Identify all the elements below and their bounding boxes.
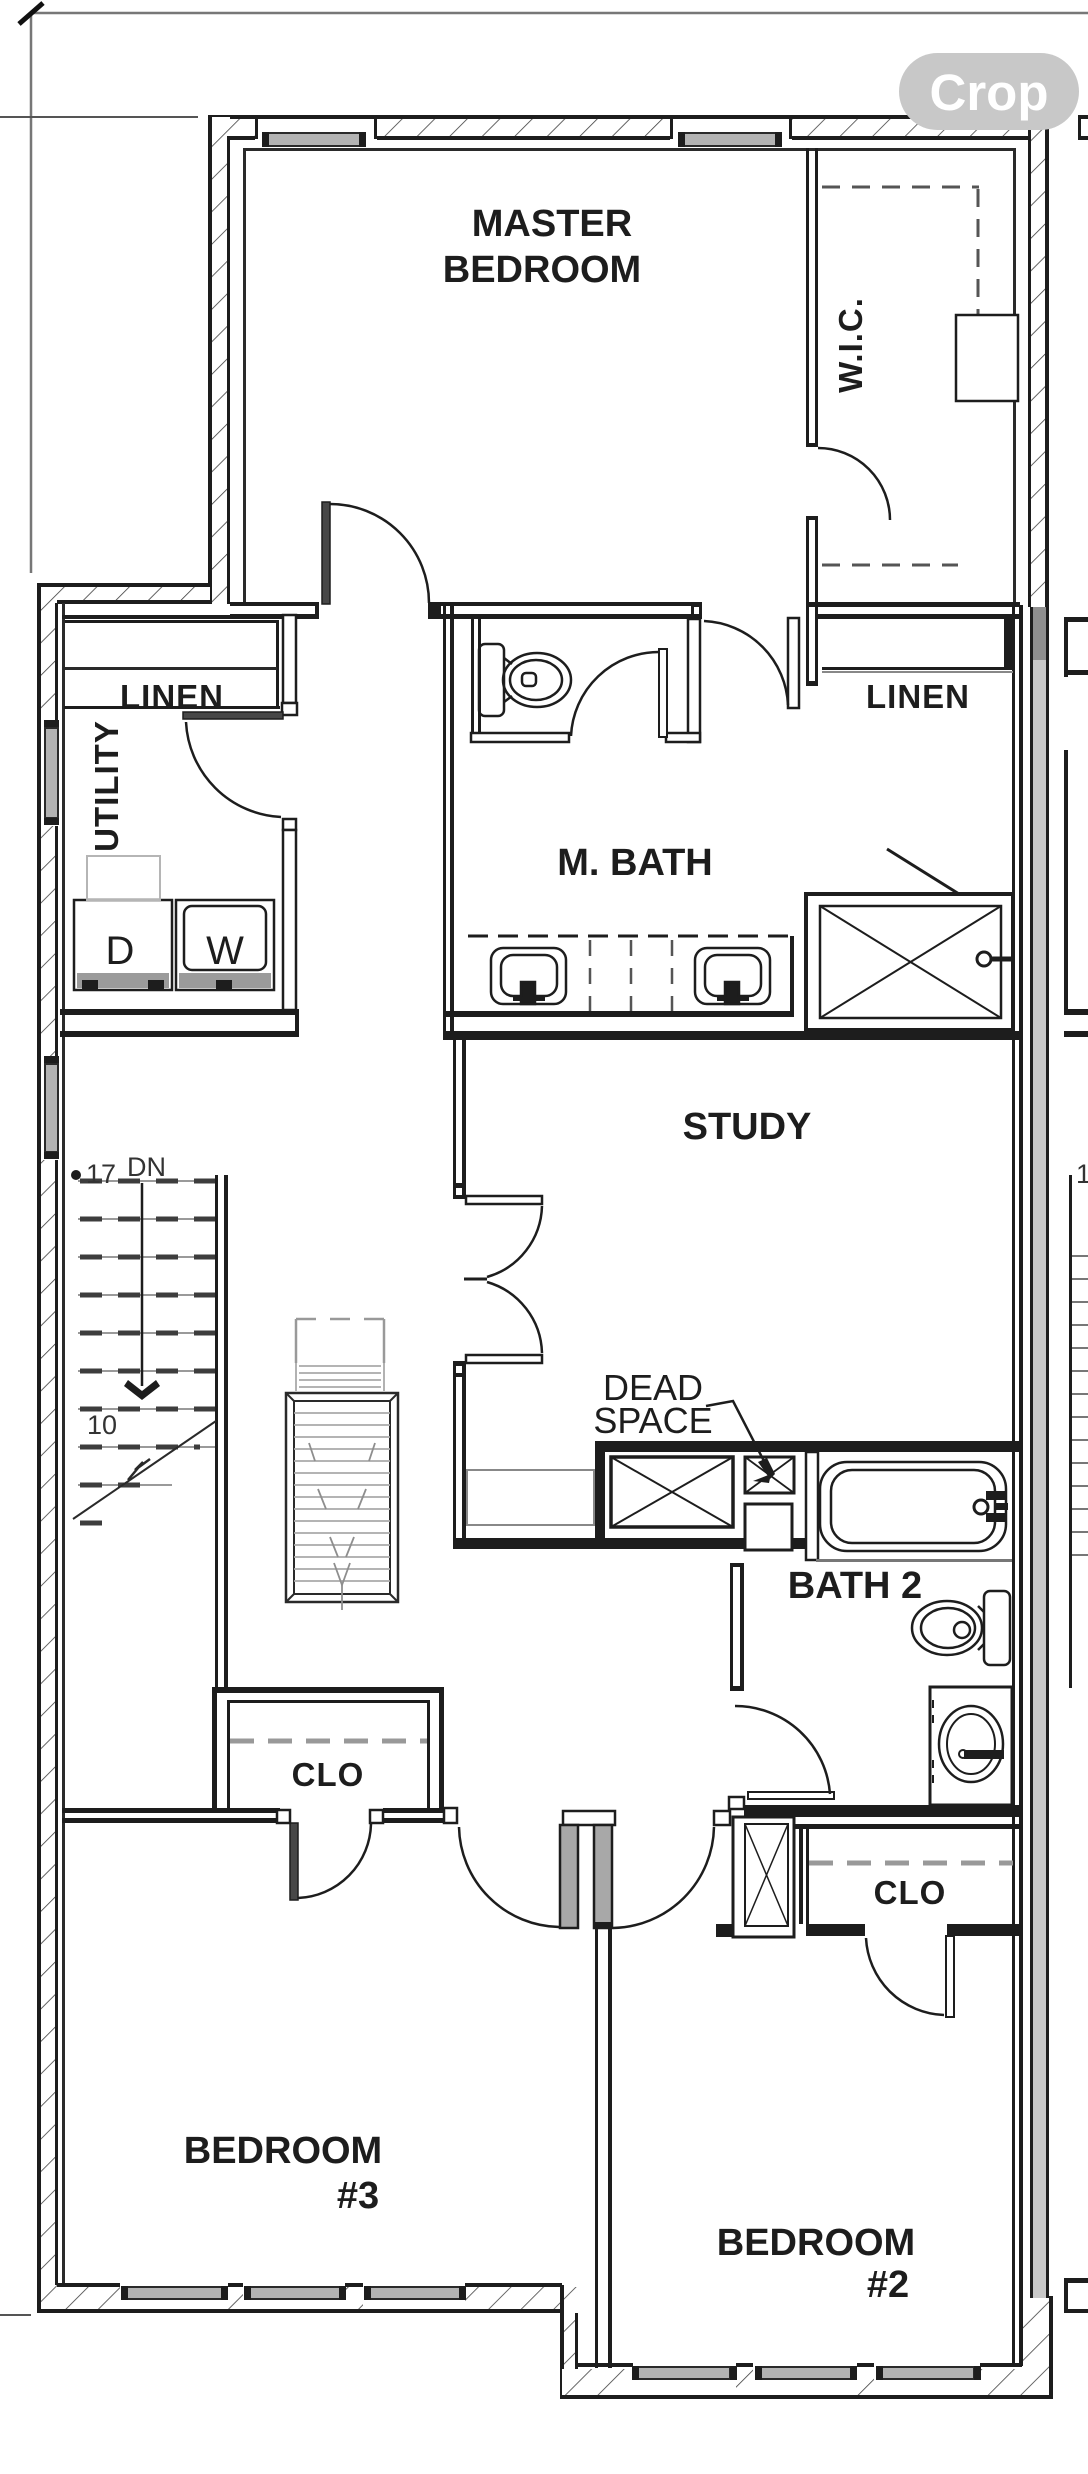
svg-text:1: 1: [1076, 1159, 1088, 1189]
svg-text:W: W: [206, 929, 244, 973]
svg-text:STUDY: STUDY: [683, 1106, 812, 1148]
svg-text:SPACE: SPACE: [593, 1400, 712, 1441]
svg-text:MASTER: MASTER: [472, 203, 632, 245]
svg-text:BEDROOM: BEDROOM: [717, 2222, 915, 2264]
svg-text:M. BATH: M. BATH: [557, 842, 713, 884]
svg-text:DN: DN: [127, 1152, 166, 1182]
svg-text:#3: #3: [337, 2175, 379, 2217]
svg-text:LINEN: LINEN: [866, 678, 970, 715]
svg-text:BEDROOM: BEDROOM: [443, 249, 641, 291]
svg-text:D: D: [106, 929, 135, 973]
svg-text:BATH 2: BATH 2: [788, 1565, 922, 1607]
svg-text:17: 17: [86, 1159, 116, 1189]
svg-text:CLO: CLO: [874, 1874, 947, 1911]
svg-text:LINEN: LINEN: [120, 678, 224, 715]
svg-text:UTILITY: UTILITY: [88, 720, 125, 852]
svg-text:10: 10: [87, 1410, 117, 1440]
svg-text:CLO: CLO: [292, 1756, 365, 1793]
svg-text:Crop: Crop: [930, 64, 1049, 121]
svg-text:BEDROOM: BEDROOM: [184, 2130, 382, 2172]
svg-text:#2: #2: [867, 2264, 909, 2306]
svg-text:W.I.C.: W.I.C.: [832, 297, 869, 393]
